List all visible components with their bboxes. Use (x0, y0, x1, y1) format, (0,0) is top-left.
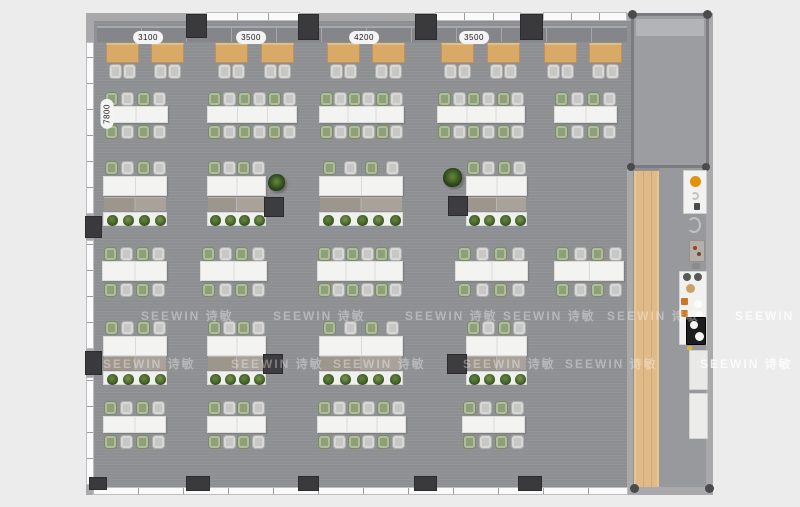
window-left-2 (86, 240, 94, 349)
floor-plan-canvas: 31003500420035007800SEEWIN 诗敏SEEWIN 诗敏SE… (0, 0, 800, 507)
dimension-label: 3100 (133, 31, 163, 44)
desk-chair (571, 125, 584, 139)
desk-chair (318, 247, 331, 261)
desk-chair (121, 125, 134, 139)
desk-chair (571, 92, 584, 106)
wood-table (261, 43, 294, 63)
desk-chair (283, 125, 296, 139)
desk-chair (333, 435, 346, 449)
desk-chair (390, 92, 403, 106)
desk-chair (268, 125, 281, 139)
desk-chair (513, 161, 526, 175)
seewin-watermark: SEEWIN 诗敏 (141, 307, 221, 321)
desk (317, 416, 406, 433)
window-top-2 (435, 12, 521, 21)
planter-box (103, 212, 167, 226)
desk-chair (389, 283, 402, 297)
planter-plant (515, 215, 526, 226)
structural-column (186, 14, 207, 38)
planter-plant (340, 215, 351, 226)
desk-chair (482, 125, 495, 139)
desk-chair (482, 92, 495, 106)
desk-chair (348, 92, 361, 106)
desk (462, 416, 525, 433)
planter-plant (357, 215, 368, 226)
desk-chair (238, 125, 251, 139)
cafe-chair (264, 64, 277, 79)
desk-chair (120, 435, 133, 449)
desk (207, 176, 266, 196)
wall-junction-dot (703, 10, 712, 19)
desk-chair (512, 247, 525, 261)
desk-chair (219, 283, 232, 297)
desk-chair (376, 92, 389, 106)
cafe-chair (444, 64, 457, 79)
window-left-1 (86, 42, 94, 214)
desk-chair (153, 321, 166, 335)
desk (317, 261, 403, 281)
seewin-watermark: SEEWIN 诗敏 (700, 355, 780, 369)
desk-chair (498, 321, 511, 335)
desk (554, 261, 624, 281)
desk (466, 176, 527, 196)
desk-chair (320, 125, 333, 139)
desk-chair (497, 92, 510, 106)
planter-box (319, 371, 403, 385)
wood-table (487, 43, 520, 63)
storage-credenza (208, 197, 265, 211)
seewin-watermark: SEEWIN 诗敏 (333, 355, 413, 369)
desk-chair (361, 283, 374, 297)
wood-bowl (686, 284, 695, 293)
desk-chair (458, 283, 471, 297)
desk (319, 106, 404, 123)
desk-chair (591, 283, 604, 297)
desk (437, 106, 525, 123)
desk-chair (386, 321, 399, 335)
desk-chair (392, 435, 405, 449)
desk-chair (574, 247, 587, 261)
desk-chair (223, 125, 236, 139)
plate-1 (694, 300, 702, 308)
desk-chair (494, 283, 507, 297)
planter-plant (500, 374, 511, 385)
desk-chair (365, 321, 378, 335)
cafe-chair (389, 64, 402, 79)
desk-chair (153, 125, 166, 139)
planter-plant (210, 374, 221, 385)
planter-plant (373, 215, 384, 226)
desk-chair (152, 435, 165, 449)
desk-chair (208, 321, 221, 335)
desk-chair (136, 283, 149, 297)
cafe-chair (490, 64, 503, 79)
planter-plant (239, 374, 250, 385)
desk-chair (137, 161, 150, 175)
desk-chair (494, 247, 507, 261)
coffee-machine (689, 240, 705, 262)
planter-plant (390, 215, 401, 226)
window-left-3 (86, 377, 94, 485)
desk-chair (467, 321, 480, 335)
wood-table (327, 43, 360, 63)
desk-chair (323, 161, 336, 175)
wall-junction-dot (630, 484, 639, 493)
cafe-chair (344, 64, 357, 79)
cafe-chair (278, 64, 291, 79)
desk-chair (152, 401, 165, 415)
desk-chair (136, 401, 149, 415)
desk-chair (344, 161, 357, 175)
desk-chair (482, 321, 495, 335)
planter-box (466, 371, 527, 385)
cafe-chair (154, 64, 167, 79)
seewin-watermark: SEEWIN 诗敏 (405, 307, 485, 321)
desk-chair (238, 92, 251, 106)
desk-chair (375, 247, 388, 261)
desk (103, 336, 167, 356)
desk-chair (346, 283, 359, 297)
desk-chair (223, 435, 236, 449)
planter-plant (225, 215, 236, 226)
wood-table (106, 43, 139, 63)
vent-glyph-2 (694, 273, 702, 281)
structural-column (520, 14, 543, 40)
desk-chair (252, 321, 265, 335)
desk-chair (476, 283, 489, 297)
seewin-watermark: SEEWIN 诗敏 (735, 307, 800, 321)
planter-plant (323, 215, 334, 226)
desk-chair (556, 247, 569, 261)
desk-chair (511, 125, 524, 139)
structural-column (518, 476, 542, 491)
planter-plant (484, 215, 495, 226)
planter-plant (357, 374, 368, 385)
vent-glyph-1 (683, 273, 691, 281)
desk-chair (223, 161, 236, 175)
desk (319, 176, 403, 196)
desk-chair (252, 401, 265, 415)
meeting-room-band (636, 19, 704, 36)
desk-chair (121, 161, 134, 175)
desk (103, 416, 166, 433)
planter-plant (390, 374, 401, 385)
desk-chair (386, 161, 399, 175)
desk-chair (318, 401, 331, 415)
desk-chair (348, 125, 361, 139)
desk-chair (136, 247, 149, 261)
desk-chair (375, 283, 388, 297)
potted-plant (443, 168, 462, 187)
cafe-chair (504, 64, 517, 79)
desk-chair (346, 247, 359, 261)
desk-chair (361, 247, 374, 261)
seewin-watermark: SEEWIN 诗敏 (565, 355, 645, 369)
desk (319, 336, 403, 356)
wall-junction-dot (627, 163, 635, 171)
side-cabinet (264, 197, 284, 217)
desk-chair (344, 321, 357, 335)
desk-chair (377, 401, 390, 415)
desk-chair (237, 401, 250, 415)
desk-chair (202, 283, 215, 297)
desk-chair (458, 247, 471, 261)
planter-plant (469, 374, 480, 385)
desk-chair (390, 125, 403, 139)
desk-chair (252, 161, 265, 175)
desk-chair (362, 435, 375, 449)
desk-chair (476, 247, 489, 261)
structural-column (298, 14, 319, 40)
desk-chair (237, 321, 250, 335)
desk-chair (137, 125, 150, 139)
desk-chair (362, 92, 375, 106)
planter-plant (469, 215, 480, 226)
wood-walkway (634, 171, 659, 487)
wood-table (441, 43, 474, 63)
desk-chair (495, 435, 508, 449)
desk-chair (208, 125, 221, 139)
desk-chair (202, 247, 215, 261)
desk-chair (574, 283, 587, 297)
desk-chair (511, 435, 524, 449)
wood-table (372, 43, 405, 63)
desk-chair (208, 435, 221, 449)
desk-chair (136, 435, 149, 449)
desk-chair (453, 92, 466, 106)
desk-chair (453, 125, 466, 139)
cafe-chair (109, 64, 122, 79)
stove-burner (690, 176, 701, 187)
planter-box (103, 371, 167, 385)
desk-chair (362, 401, 375, 415)
structural-column (414, 476, 437, 491)
desk-chair (348, 401, 361, 415)
desk-chair (609, 247, 622, 261)
desk-chair (223, 92, 236, 106)
cafe-chair (218, 64, 231, 79)
desk-chair (438, 125, 451, 139)
coffee-dot-2 (697, 252, 701, 256)
planter-plant (210, 215, 221, 226)
desk-chair (334, 125, 347, 139)
desk-chair (479, 401, 492, 415)
desk (466, 336, 527, 356)
desk-chair (376, 125, 389, 139)
stool-ring (687, 217, 701, 233)
desk-chair (104, 435, 117, 449)
sink-ring (691, 192, 699, 200)
desk (207, 336, 266, 356)
planter-box (207, 371, 266, 385)
desk-chair (603, 92, 616, 106)
planter-plant (155, 374, 166, 385)
planter-plant (500, 215, 511, 226)
small-item (692, 263, 700, 269)
desk-chair (555, 92, 568, 106)
desk-chair (555, 125, 568, 139)
desk-chair (334, 92, 347, 106)
desk-chair (237, 161, 250, 175)
desk-chair (497, 125, 510, 139)
desk-chair (609, 283, 622, 297)
storage-credenza (104, 197, 166, 211)
desk-chair (153, 92, 166, 106)
cafe-chair (592, 64, 605, 79)
cafe-chair (561, 64, 574, 79)
desk-chair (362, 125, 375, 139)
dimension-label-vertical: 7800 (101, 99, 114, 129)
desk (207, 416, 266, 433)
planter-plant (515, 374, 526, 385)
planter-plant (155, 215, 166, 226)
desk-chair (587, 92, 600, 106)
desk-chair (235, 283, 248, 297)
desk-chair (253, 125, 266, 139)
planter-box (466, 212, 527, 226)
desk-chair (463, 401, 476, 415)
desk-chair (332, 283, 345, 297)
fridge-plate-2 (695, 332, 704, 341)
seewin-watermark: SEEWIN 诗敏 (463, 355, 543, 369)
planter-plant (254, 374, 265, 385)
desk-chair (104, 401, 117, 415)
wood-table (589, 43, 622, 63)
desk-chair (105, 161, 118, 175)
desk-chair (252, 247, 265, 261)
structural-column (89, 477, 107, 490)
desk-chair (223, 321, 236, 335)
desk-chair (121, 321, 134, 335)
storage-credenza (320, 197, 402, 211)
desk-chair (591, 247, 604, 261)
seewin-watermark: SEEWIN 诗敏 (503, 307, 583, 321)
desk-chair (137, 92, 150, 106)
planter-plant (139, 215, 150, 226)
desk-chair (512, 283, 525, 297)
wood-table (215, 43, 248, 63)
cafe-chair (458, 64, 471, 79)
desk (455, 261, 528, 281)
desk-chair (152, 283, 165, 297)
desk-chair (333, 401, 346, 415)
desk (200, 261, 267, 281)
coffee-dot-1 (693, 246, 697, 250)
storage-credenza (467, 197, 526, 211)
desk-chair (120, 247, 133, 261)
planter-plant (107, 374, 118, 385)
tap-glyph (694, 203, 700, 210)
desk-chair (348, 435, 361, 449)
meeting-room (631, 13, 709, 168)
desk-chair (603, 125, 616, 139)
tall-cabinet-2 (689, 393, 708, 439)
potted-plant (268, 174, 285, 191)
desk-chair (318, 435, 331, 449)
cafe-chair (547, 64, 560, 79)
desk-chair (208, 401, 221, 415)
dimension-label: 3500 (236, 31, 266, 44)
structural-column (415, 14, 437, 40)
desk-chair (208, 161, 221, 175)
planter-plant (373, 374, 384, 385)
desk-chair (283, 92, 296, 106)
desk-chair (320, 92, 333, 106)
window-bottom (93, 487, 628, 495)
side-cabinet (448, 196, 468, 216)
desk-chair (438, 92, 451, 106)
seewin-watermark: SEEWIN 诗敏 (607, 307, 687, 321)
desk-chair (511, 401, 524, 415)
desk-chair (152, 247, 165, 261)
planter-plant (123, 374, 134, 385)
hob-orange-1 (681, 298, 688, 305)
desk (102, 261, 167, 281)
desk-chair (208, 92, 221, 106)
desk-chair (495, 401, 508, 415)
desk-chair (137, 321, 150, 335)
seewin-watermark: SEEWIN 诗敏 (273, 307, 353, 321)
desk (554, 106, 617, 123)
desk-chair (365, 161, 378, 175)
wall-junction-dot (705, 484, 714, 493)
dimension-label: 4200 (349, 31, 379, 44)
desk-chair (467, 125, 480, 139)
desk (207, 106, 297, 123)
seewin-watermark: SEEWIN 诗敏 (103, 355, 183, 369)
desk-chair (556, 283, 569, 297)
planter-plant (225, 374, 236, 385)
desk-chair (153, 161, 166, 175)
desk-chair (252, 435, 265, 449)
mid-right-wall (627, 166, 633, 492)
planter-plant (139, 374, 150, 385)
cafe-chair (123, 64, 136, 79)
wood-table (544, 43, 577, 63)
desk-chair (498, 161, 511, 175)
cafe-chair (375, 64, 388, 79)
structural-column (298, 476, 319, 491)
window-top-1 (206, 12, 300, 21)
planter-plant (323, 374, 334, 385)
desk (103, 176, 167, 196)
desk-chair (120, 401, 133, 415)
desk-chair (467, 161, 480, 175)
structural-column (85, 216, 102, 238)
desk-chair (121, 92, 134, 106)
cafe-chair (232, 64, 245, 79)
structural-column (85, 351, 102, 375)
desk-chair (511, 92, 524, 106)
planter-plant (239, 215, 250, 226)
desk-chair (318, 283, 331, 297)
planter-box (207, 212, 266, 226)
desk-chair (105, 321, 118, 335)
desk-chair (237, 435, 250, 449)
desk-chair (479, 435, 492, 449)
cafe-chair (168, 64, 181, 79)
desk-chair (223, 401, 236, 415)
cafe-chair (330, 64, 343, 79)
window-top-3 (543, 12, 627, 21)
structural-column (186, 476, 210, 491)
desk-chair (219, 247, 232, 261)
planter-plant (107, 215, 118, 226)
desk-chair (482, 161, 495, 175)
desk-chair (235, 247, 248, 261)
planter-plant (123, 215, 134, 226)
cafe-chair (606, 64, 619, 79)
